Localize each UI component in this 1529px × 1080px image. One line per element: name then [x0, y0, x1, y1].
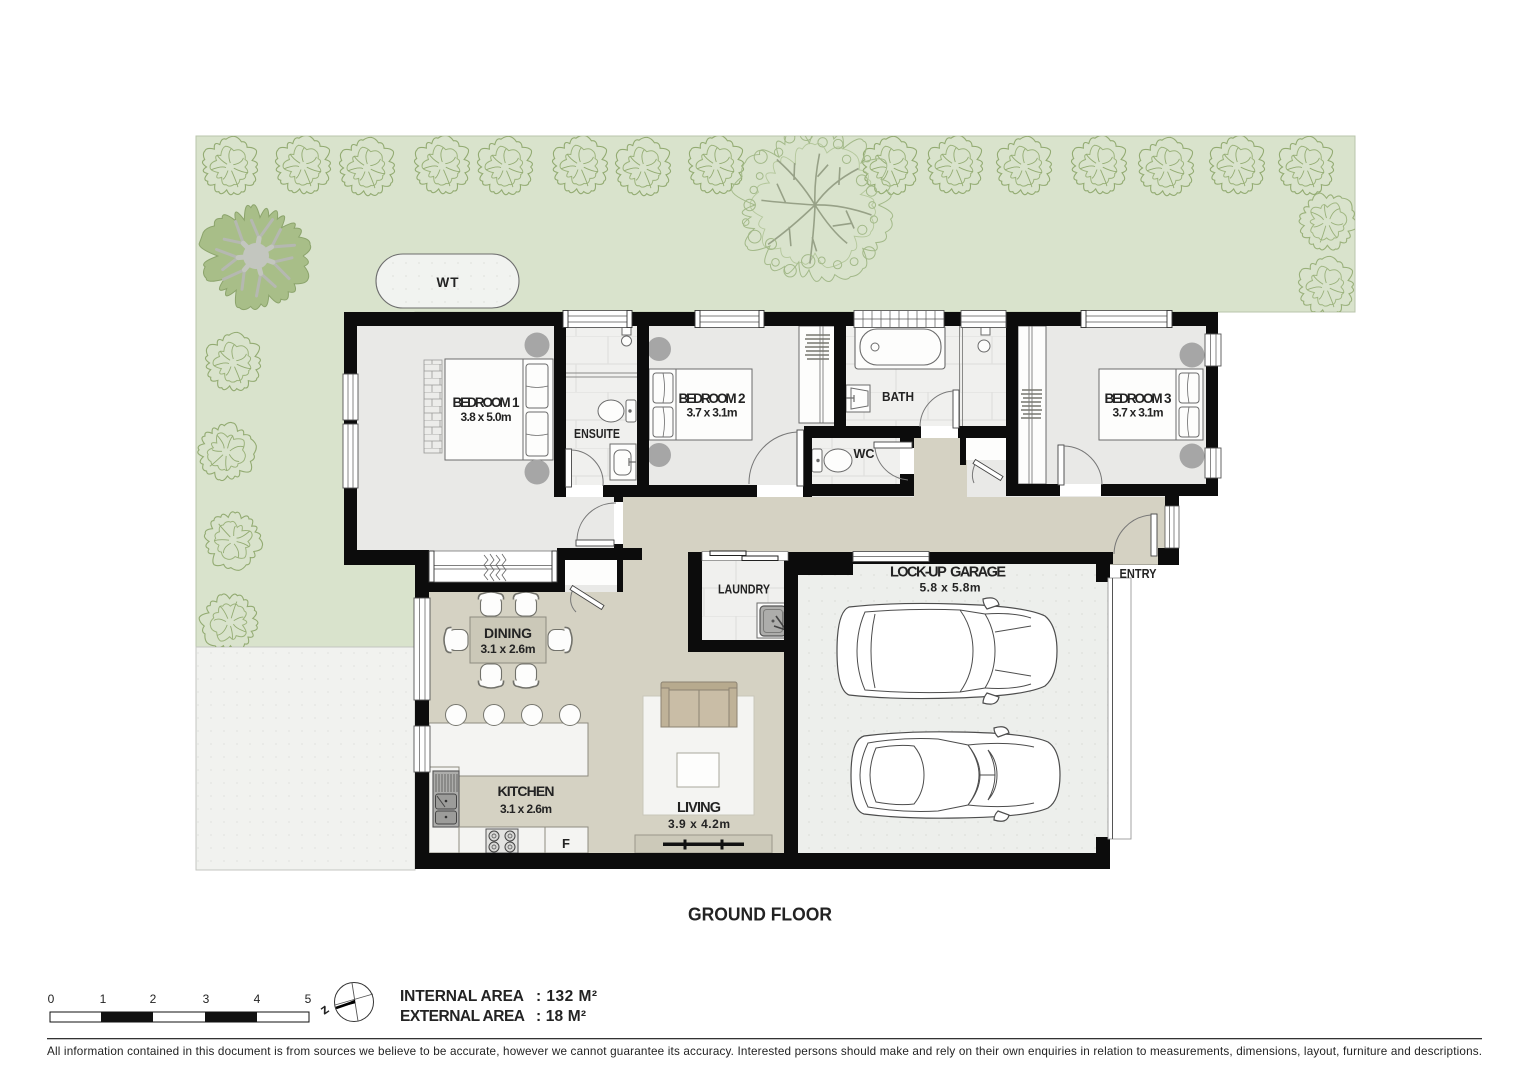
svg-text:3.7 x 3.1m: 3.7 x 3.1m [687, 406, 738, 420]
svg-text:WC: WC [854, 446, 876, 461]
svg-text:2: 2 [150, 992, 157, 1006]
svg-text:3: 3 [203, 992, 210, 1006]
svg-text:: 18 M²: : 18 M² [536, 1008, 586, 1025]
svg-text:3.7 x 3.1m: 3.7 x 3.1m [1113, 406, 1164, 420]
svg-text:LOCK-UP GARAGE: LOCK-UP GARAGE [890, 565, 1006, 581]
svg-text:4: 4 [254, 992, 261, 1006]
svg-text:All information contained in t: All information contained in this docume… [47, 1045, 1482, 1058]
svg-text:5.8 x 5.8m: 5.8 x 5.8m [920, 581, 981, 595]
svg-text:KITCHEN: KITCHEN [498, 783, 555, 799]
svg-text:WT: WT [437, 275, 460, 290]
svg-text:ENSUITE: ENSUITE [574, 426, 620, 441]
svg-text:BEDROOM 3: BEDROOM 3 [1105, 391, 1172, 406]
svg-text:EXTERNAL AREA: EXTERNAL AREA [400, 1008, 525, 1025]
svg-text:LIVING: LIVING [677, 800, 721, 816]
svg-text:ENTRY: ENTRY [1120, 566, 1157, 581]
svg-text:5: 5 [305, 992, 312, 1006]
svg-text:DINING: DINING [484, 625, 532, 641]
svg-text:BEDROOM 2: BEDROOM 2 [679, 391, 746, 406]
svg-text:3.9 x 4.2m: 3.9 x 4.2m [668, 817, 730, 831]
svg-text:BEDROOM 1: BEDROOM 1 [453, 395, 520, 410]
svg-text:3.1 x 2.6m: 3.1 x 2.6m [481, 642, 536, 656]
svg-text:F: F [562, 836, 570, 851]
svg-text:3.8 x 5.0m: 3.8 x 5.0m [461, 410, 512, 424]
svg-text:GROUND FLOOR: GROUND FLOOR [688, 905, 832, 925]
svg-text:INTERNAL AREA: INTERNAL AREA [400, 988, 524, 1005]
svg-text:LAUNDRY: LAUNDRY [718, 582, 770, 597]
svg-text:BATH: BATH [882, 389, 914, 404]
svg-text:3.1 x 2.6m: 3.1 x 2.6m [500, 802, 552, 816]
svg-text:0: 0 [48, 992, 55, 1006]
svg-text:: 132 M²: : 132 M² [536, 988, 597, 1005]
svg-text:1: 1 [100, 992, 107, 1006]
